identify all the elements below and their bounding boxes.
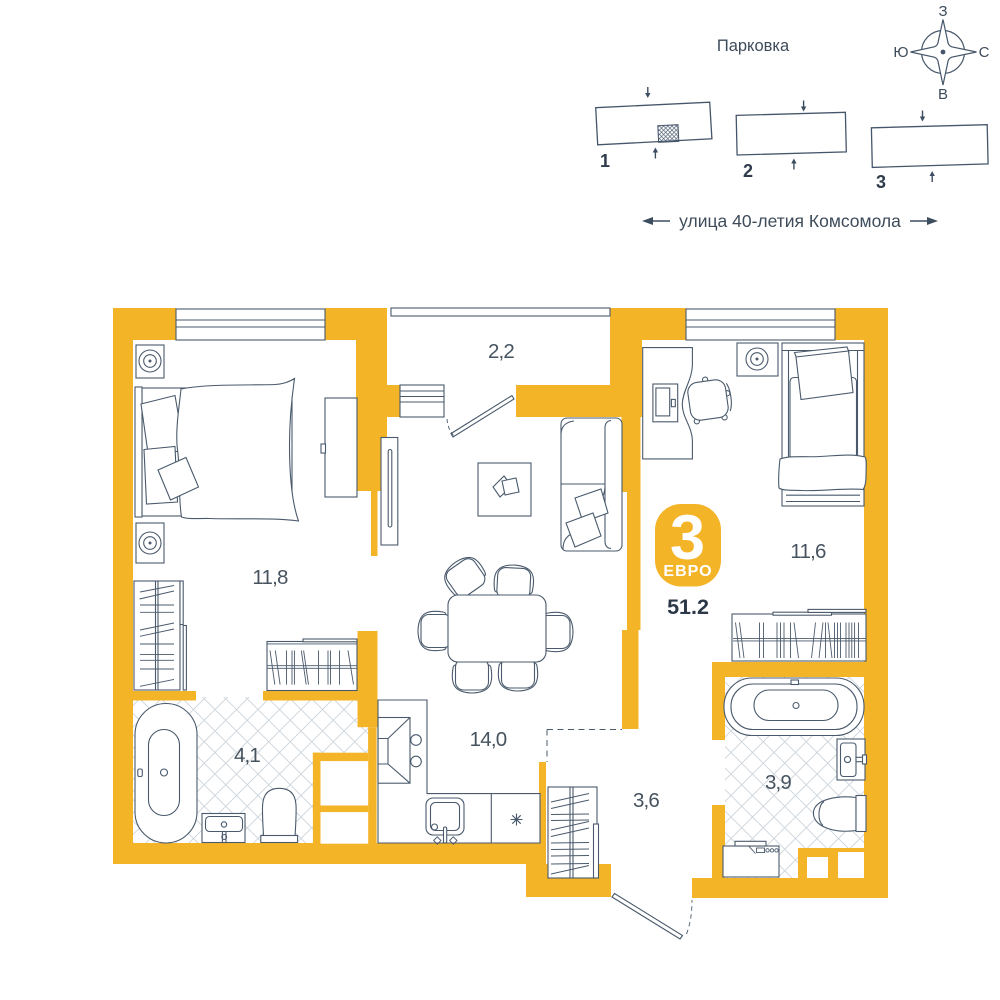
svg-text:51.2: 51.2	[667, 595, 709, 619]
svg-text:Парковка: Парковка	[717, 37, 790, 55]
svg-text:4,1: 4,1	[234, 744, 260, 767]
svg-text:З: З	[938, 3, 947, 20]
svg-text:3,9: 3,9	[765, 771, 791, 794]
svg-text:14,0: 14,0	[470, 728, 507, 751]
svg-text:ЕВРО: ЕВРО	[663, 563, 712, 580]
svg-text:Ю: Ю	[893, 44, 908, 61]
svg-text:3: 3	[876, 172, 886, 192]
svg-text:11,6: 11,6	[790, 540, 826, 563]
svg-text:2,2: 2,2	[488, 340, 514, 363]
svg-text:11,8: 11,8	[252, 566, 288, 589]
svg-text:3,6: 3,6	[633, 789, 659, 812]
svg-text:В: В	[938, 86, 948, 103]
svg-text:С: С	[979, 44, 990, 61]
svg-text:2: 2	[743, 161, 753, 181]
svg-text:1: 1	[600, 151, 610, 171]
svg-text:улица 40-летия Комсомола: улица 40-летия Комсомола	[679, 211, 901, 231]
